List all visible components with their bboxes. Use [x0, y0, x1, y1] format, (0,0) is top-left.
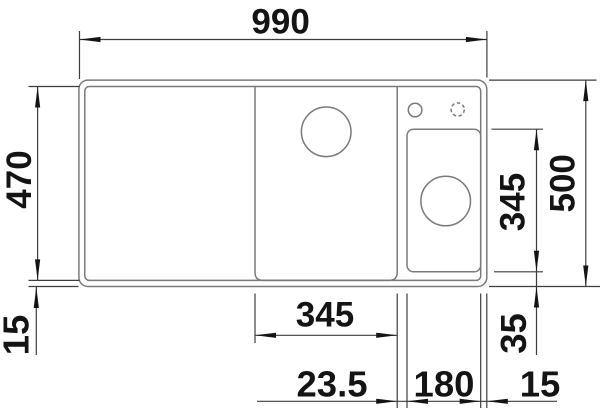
svg-text:500: 500	[544, 154, 583, 212]
svg-text:470: 470	[0, 150, 39, 208]
svg-text:345: 345	[494, 173, 533, 231]
svg-text:990: 990	[251, 3, 309, 42]
svg-text:345: 345	[296, 295, 354, 334]
svg-text:15: 15	[520, 363, 561, 404]
svg-text:15: 15	[0, 315, 37, 356]
svg-text:35: 35	[493, 313, 534, 354]
svg-text:23.5: 23.5	[296, 363, 367, 404]
svg-text:180: 180	[414, 363, 475, 404]
